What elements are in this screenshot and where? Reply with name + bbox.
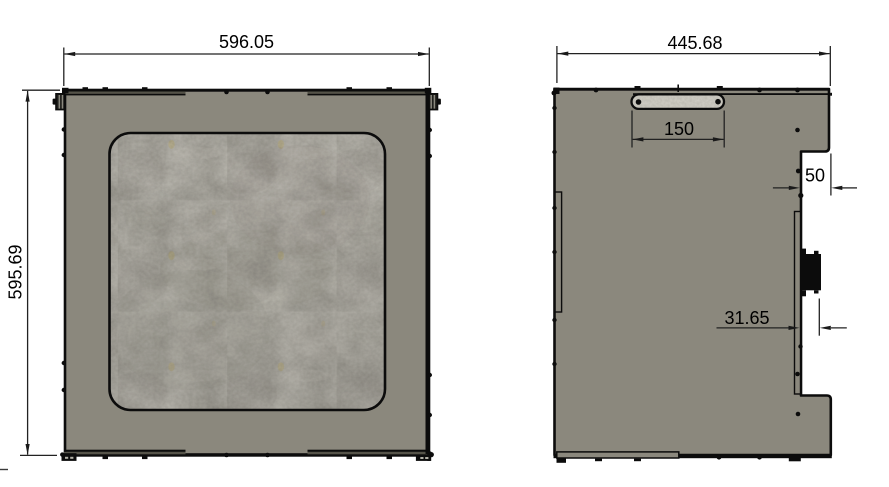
svg-text:150: 150 [664, 119, 694, 139]
svg-text:31.65: 31.65 [724, 308, 769, 328]
svg-text:50: 50 [805, 166, 825, 186]
svg-text:445.68: 445.68 [667, 33, 722, 53]
svg-text:595.69: 595.69 [6, 244, 26, 299]
svg-text:596.05: 596.05 [219, 32, 274, 52]
